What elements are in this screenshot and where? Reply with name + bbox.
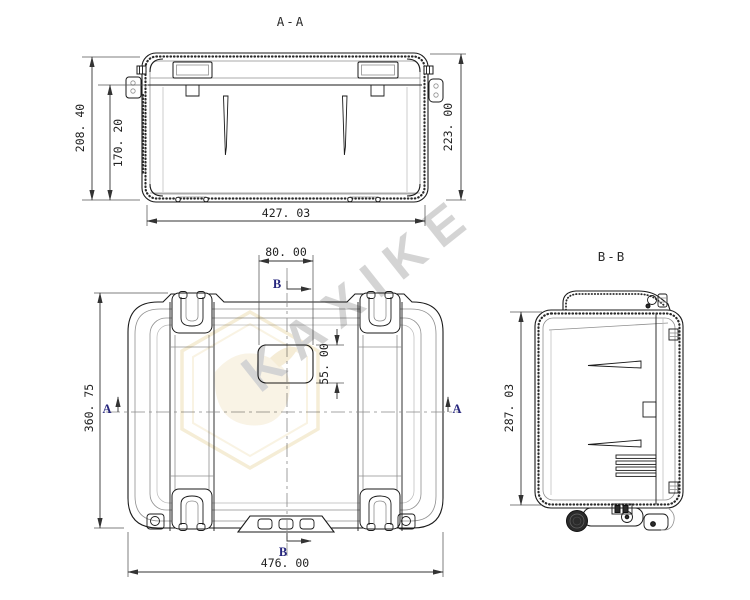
hinge-pad-left (126, 77, 143, 175)
latch-handle-bottom (172, 489, 212, 531)
svg-text:80. 00: 80. 00 (265, 245, 307, 259)
section-marker-a-right: A (448, 397, 462, 416)
latch-cover-right (358, 62, 398, 78)
section-aa-title: A-A (277, 14, 306, 29)
section-marker-a-left: A (102, 397, 118, 416)
svg-text:A: A (452, 402, 461, 416)
dim-inner-height-170: 170. 20 (98, 85, 148, 200)
svg-text:208. 40: 208. 40 (73, 104, 87, 153)
svg-text:223. 00: 223. 00 (441, 103, 455, 152)
latch-handle-bottom (360, 489, 400, 531)
svg-text:B: B (273, 277, 281, 291)
wheel-knob (567, 511, 588, 532)
dim-total-height-223: 223. 00 (430, 54, 466, 200)
rim-keeper-right (424, 66, 433, 74)
view-section-aa: A-A (73, 14, 466, 226)
svg-text:427. 03: 427. 03 (262, 206, 311, 220)
latch-handle-top (172, 292, 212, 334)
foot-right (644, 514, 668, 530)
svg-text:287. 03: 287. 03 (502, 384, 516, 433)
rim-keeper-left (137, 66, 146, 74)
section-bb-title: B-B (598, 249, 627, 264)
section-marker-b-top: B (273, 277, 311, 291)
svg-text:360. 75: 360. 75 (82, 384, 96, 432)
svg-text:170. 20: 170. 20 (111, 119, 125, 168)
view-section-bb: B-B (502, 249, 683, 532)
latch-cover-left (173, 62, 212, 78)
hinge-pad-right (429, 79, 443, 102)
dim-width-427: 427. 03 (147, 205, 425, 226)
svg-text:A: A (102, 402, 111, 416)
svg-text:476. 00: 476. 00 (261, 556, 310, 570)
carry-handle-bottom (238, 516, 334, 532)
technical-drawing-canvas: A-A (0, 0, 750, 600)
case-outline (535, 310, 683, 508)
